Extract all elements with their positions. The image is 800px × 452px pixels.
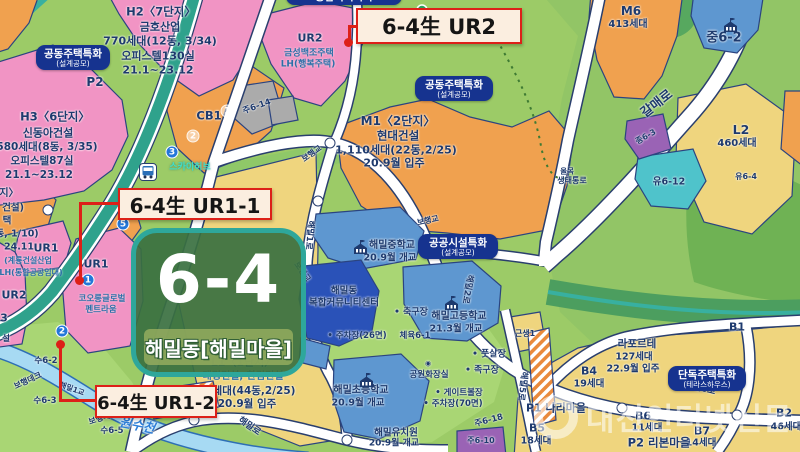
map-label: M6: [621, 5, 641, 17]
map-label: 지〉: [0, 189, 19, 199]
map-label: 복합커뮤니티센터: [309, 298, 379, 308]
district-name: 해밀동[해밀마을]: [145, 333, 292, 362]
map-label: 오피스텔87실: [11, 156, 74, 167]
map-label: M1〈2단지〉: [361, 115, 436, 127]
map-label: 770세대(12동, 3/34): [103, 36, 217, 47]
callout-ur2-dot: [344, 38, 353, 47]
map-label: 20.9월 개교: [332, 398, 385, 408]
callout-ur1-1-dot: [75, 276, 84, 285]
map-label: 413세대: [608, 20, 647, 30]
map-label: B5: [529, 423, 545, 434]
map-label: 46세대: [771, 422, 800, 432]
map-label: 21.1~23.12: [5, 170, 73, 181]
map-label: 보행교: [416, 215, 439, 227]
map-label: 동, 1/10): [0, 229, 39, 239]
map-label: 해밀1교: [59, 381, 86, 397]
map-label: 20.9월 개교: [364, 253, 417, 263]
map-label: 20.9월 입주: [218, 399, 277, 410]
map-label: 21.3월 개교: [430, 324, 483, 334]
map-label: 해밀유치원: [374, 428, 418, 438]
map-label: 금호산업: [140, 22, 180, 33]
road-node-marker: [617, 403, 628, 414]
road-node-marker: [325, 138, 336, 149]
map-label: 해밀중학교: [369, 241, 415, 251]
numbered-circle-marker: 1: [221, 105, 234, 118]
map-label: 해밀1로: [303, 220, 314, 250]
map-label: UR1: [33, 243, 58, 254]
badge-detached-house-line2: (테라스하우스): [672, 381, 742, 389]
map-label: 21.1~23.12: [122, 65, 193, 76]
district-code: 6-4: [136, 241, 301, 318]
map-label: B7: [694, 426, 710, 437]
map-label: 주6-10: [467, 437, 494, 445]
map-label: 올목: [560, 167, 574, 175]
district-name-strip: 해밀동[해밀마을]: [144, 329, 293, 365]
map-label: (계룡건설산업: [4, 257, 52, 265]
map-label: UR1: [83, 259, 108, 270]
map-label: 코오롱글로벌: [79, 295, 126, 304]
map-label: B1: [729, 322, 745, 333]
map-label: 수6-2: [34, 357, 57, 366]
badge-apartment-1: 공동주택특화 (설계공모): [36, 45, 110, 70]
map-label: 18세대: [521, 436, 552, 446]
map-label: 스카이허브: [169, 164, 210, 173]
map-canvas: H2〈7단지〉금호산업770세대(12동, 3/34)오피스텔130실21.1~…: [0, 0, 800, 452]
map-label: • 축구장: [394, 309, 428, 318]
map-label: 주6-14: [242, 98, 272, 116]
badge-apartment-1-line2: (설계공모): [40, 60, 106, 68]
badge-detached-house: 단독주택특화 (테라스하우스): [668, 366, 746, 391]
map-label: 택: [3, 216, 12, 226]
map-label: 주6-18: [474, 413, 504, 429]
map-label: 1,110세대(22동,2/25): [335, 145, 457, 156]
map-label: 갈매로: [639, 88, 675, 120]
map-label: B4: [581, 366, 597, 377]
badge-apartment-2-line2: (설계공모): [419, 91, 489, 99]
map-label: L2: [733, 124, 750, 137]
map-label: B2: [776, 408, 792, 419]
map-label: H3〈6단지〉: [20, 111, 90, 123]
callout-ur1-1-box: 6-4生 UR1-1: [118, 188, 272, 220]
map-label: LH(행복주택): [281, 61, 336, 70]
numbered-circle-marker: 2: [56, 325, 69, 338]
map-label: 20.9월 개교: [369, 440, 419, 449]
map-label: H2〈7단지〉: [126, 6, 196, 18]
map-label: ◉: [425, 361, 431, 368]
map-label: 해밀5로: [516, 371, 528, 401]
map-label: 20.9월 입주: [363, 158, 424, 169]
map-label: 3: [0, 313, 8, 324]
map-label: 설: [2, 335, 10, 344]
map-label: CB1: [196, 110, 221, 122]
map-label: 라포르테: [618, 339, 657, 350]
badge-welfare-label: 종합복지특화: [290, 0, 398, 3]
map-label: 생태통로: [557, 177, 586, 185]
map-label: 보행교: [301, 144, 324, 163]
map-label: 원수천: [118, 416, 156, 436]
map-label: • 풋살장: [472, 351, 506, 360]
map-label: 체육6-1: [400, 332, 431, 341]
road-node-marker: [732, 410, 743, 421]
callout-ur2-box: 6-4生 UR2: [356, 8, 522, 44]
map-label: P2: [86, 76, 103, 88]
district-badge: 6-4 해밀동[해밀마을]: [131, 228, 306, 377]
map-label: 보행데크: [13, 371, 43, 391]
map-label: 유6-12: [653, 177, 686, 187]
map-label: • 족구장: [465, 367, 499, 376]
map-label: • 주차장(26면): [327, 332, 386, 341]
road-node-marker: [313, 196, 324, 207]
map-label: 종6-3: [635, 128, 658, 146]
badge-welfare: 종합복지특화: [286, 0, 402, 5]
map-label: 공원화장실: [409, 371, 448, 380]
map-label: 19세대: [574, 379, 605, 389]
numbered-circle-marker: 3: [166, 146, 179, 159]
map-label: 127세대: [615, 352, 652, 362]
map-label: 중6-2: [706, 32, 741, 45]
map-label: P2 리본마을: [628, 437, 691, 449]
map-label: 건설): [2, 203, 24, 213]
map-label: 24.11: [4, 242, 34, 252]
map-label: 근생1: [515, 330, 535, 338]
badge-public-facility: 공공시설특화 (설계공모): [418, 234, 498, 259]
numbered-circle-marker: 2: [187, 130, 200, 143]
map-label: 금성백조주택: [284, 50, 334, 59]
map-label: 현대건설: [377, 130, 419, 142]
badge-public-facility-line2: (설계공모): [422, 249, 494, 257]
map-label: UR2: [297, 33, 322, 44]
map-label: 해밀동: [331, 286, 357, 296]
map-label: 11세대: [632, 423, 663, 433]
map-label: UR2: [1, 290, 26, 301]
map-label: B6: [635, 411, 651, 422]
road-node-marker: [342, 435, 353, 446]
map-label: P1 나리마을: [526, 403, 586, 414]
map-label: 펜트라움: [85, 306, 116, 315]
map-label: 해밀로: [236, 416, 262, 438]
map-label: LH(통합공공임대): [0, 269, 63, 277]
map-label: 수6-3: [33, 397, 56, 406]
map-label: 460세대: [717, 139, 756, 149]
map-label: 유6-4: [735, 173, 757, 181]
map-label: 세대(44동,2/25): [213, 386, 296, 397]
badge-apartment-2: 공동주택특화 (설계공모): [415, 76, 493, 101]
map-label: 해밀고등학교: [431, 312, 486, 322]
callout-ur1-2-box: 6-4生 UR1-2: [95, 385, 217, 418]
map-label: • 주차장(70면): [423, 400, 482, 409]
map-label: 오피스텔130실: [121, 51, 195, 62]
map-label: 신동아건설: [23, 128, 74, 139]
map-label: • 게이트볼장: [435, 389, 483, 398]
map-label: 580세대(8동, 3/35): [0, 142, 98, 153]
road-node-marker: [43, 205, 54, 216]
map-label: 22.9월 입주: [607, 364, 660, 374]
map-label: 해밀2로: [460, 274, 473, 304]
